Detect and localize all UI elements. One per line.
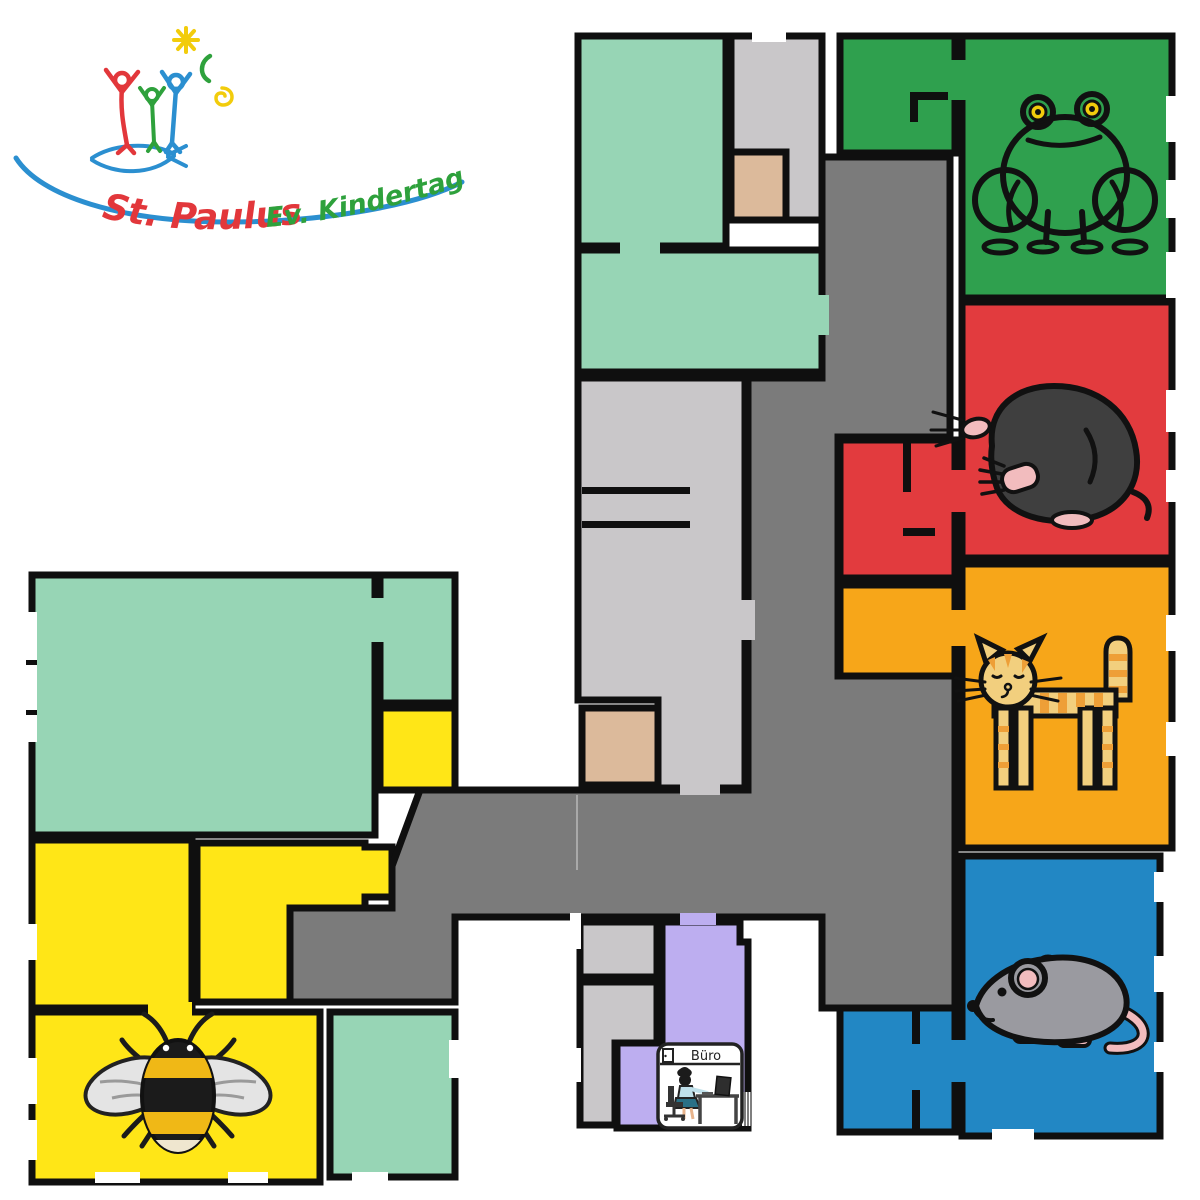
room-mint-north-a bbox=[578, 36, 726, 246]
room-gray-south-a bbox=[580, 922, 657, 977]
room-yellow-west bbox=[32, 840, 192, 1008]
logo-figure-red-icon bbox=[106, 70, 138, 153]
logo-spiral-icon bbox=[216, 88, 232, 105]
room-tan-north bbox=[731, 152, 786, 220]
room-mint-north-b bbox=[578, 250, 822, 372]
floor-plan: St. Paulus Ev. Kindertagesstätte bbox=[0, 0, 1200, 1200]
logo-figure-blue-icon bbox=[162, 72, 190, 152]
logo-star-icon bbox=[174, 28, 198, 52]
room-blue-small bbox=[840, 1008, 955, 1132]
logo-figure-green-icon bbox=[140, 88, 164, 151]
office-label: Büro bbox=[691, 1049, 721, 1064]
logo-crescent-icon bbox=[202, 56, 210, 81]
room-orange-small bbox=[840, 585, 955, 676]
kindergarten-logo: St. Paulus Ev. Kindertagesstätte bbox=[0, 0, 470, 238]
room-mint-large bbox=[32, 575, 375, 835]
hatched-door-marker bbox=[742, 1092, 754, 1126]
office-desk-icon: Büro bbox=[658, 1044, 742, 1128]
room-mint-small-east bbox=[380, 575, 455, 703]
room-yellow-small-east bbox=[380, 708, 455, 790]
logo-fish-icon bbox=[92, 146, 186, 171]
room-tan-west bbox=[582, 708, 658, 785]
room-mint-south bbox=[330, 1012, 455, 1177]
room-red-small bbox=[840, 440, 955, 578]
room-frog-group bbox=[962, 36, 1172, 298]
